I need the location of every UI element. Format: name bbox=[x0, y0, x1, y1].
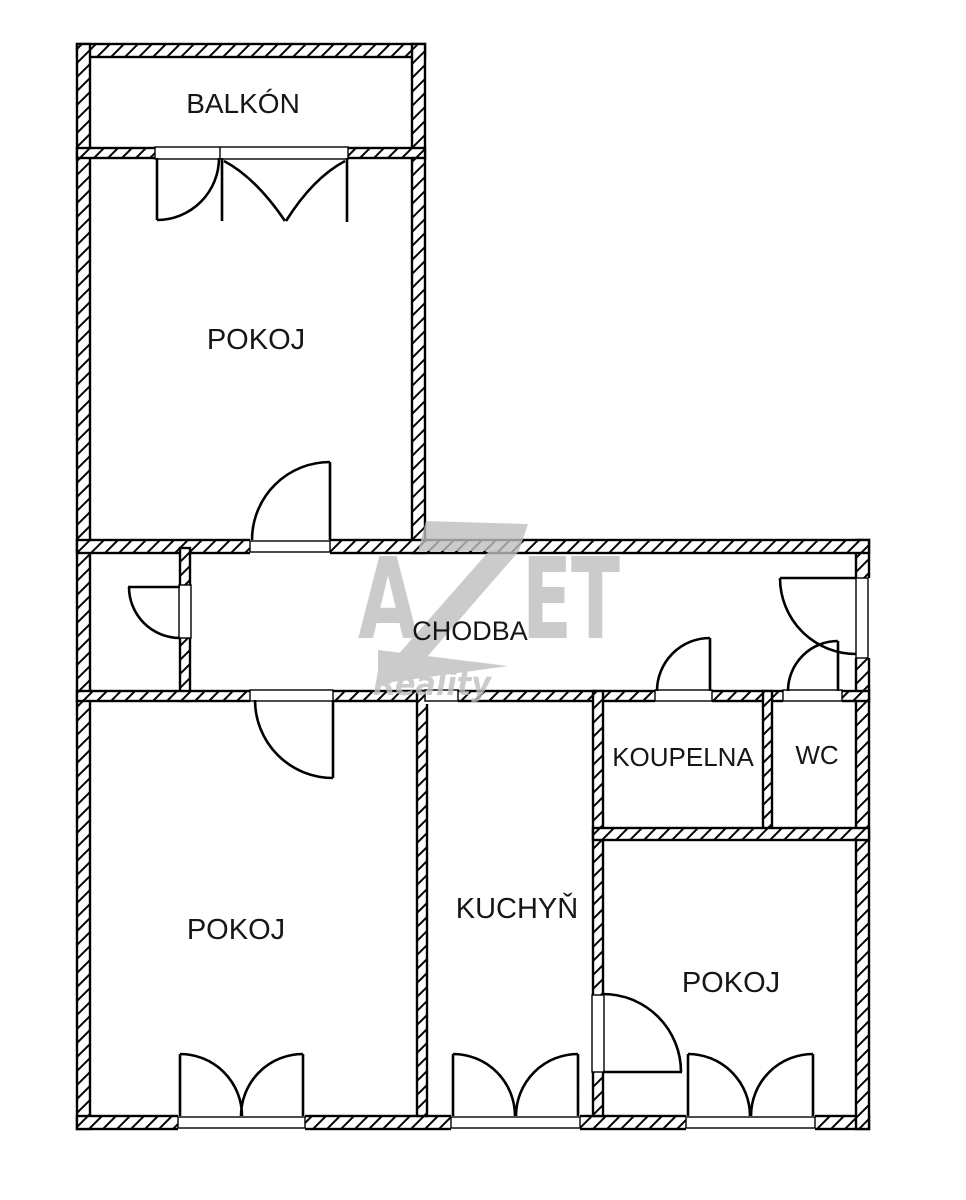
threshold-room-right-door bbox=[592, 995, 604, 1072]
wall-exterior-top bbox=[77, 44, 425, 57]
plan-background bbox=[0, 0, 966, 1200]
wall-bathroom-bottom bbox=[593, 828, 869, 840]
watermark-letter-e: E bbox=[522, 535, 572, 665]
threshold-entrance-door bbox=[856, 578, 868, 658]
room-label-pokoj-top: POKOJ bbox=[207, 324, 305, 356]
room-label-wc: WC bbox=[795, 740, 838, 770]
threshold-window-room-left bbox=[178, 1117, 305, 1128]
wall-exterior-right-upper bbox=[412, 44, 425, 553]
threshold-window-room-right bbox=[686, 1117, 815, 1128]
watermark-letter-t: T bbox=[571, 535, 620, 665]
wall-kitchen-left bbox=[417, 691, 427, 1116]
floorplan-svg: A E T Reality BALKÓN POKOJ CHODBA KOUPEL… bbox=[0, 0, 966, 1200]
threshold-window-kitchen bbox=[451, 1117, 580, 1128]
threshold-balcony-doors bbox=[155, 147, 348, 159]
floorplan-page: A E T Reality BALKÓN POKOJ CHODBA KOUPEL… bbox=[0, 0, 966, 1200]
watermark-subtitle: Reality bbox=[373, 664, 492, 703]
wall-bathroom-wc-divider bbox=[763, 691, 772, 834]
room-label-pokoj-right: POKOJ bbox=[682, 967, 780, 999]
wall-exterior-left bbox=[77, 44, 90, 1129]
watermark-z-top bbox=[418, 521, 528, 551]
room-label-koupelna: KOUPELNA bbox=[612, 742, 754, 772]
threshold-wc-door bbox=[783, 690, 842, 701]
threshold-closet-door bbox=[179, 585, 191, 638]
room-label-pokoj-left: POKOJ bbox=[187, 914, 285, 946]
room-label-chodba: CHODBA bbox=[412, 616, 528, 646]
threshold-room-top-door bbox=[250, 541, 330, 552]
threshold-room-left-door bbox=[250, 690, 333, 701]
room-label-balkon: BALKÓN bbox=[186, 88, 300, 119]
threshold-bathroom-door bbox=[655, 690, 712, 701]
room-label-kuchyn: KUCHYŇ bbox=[456, 892, 578, 925]
